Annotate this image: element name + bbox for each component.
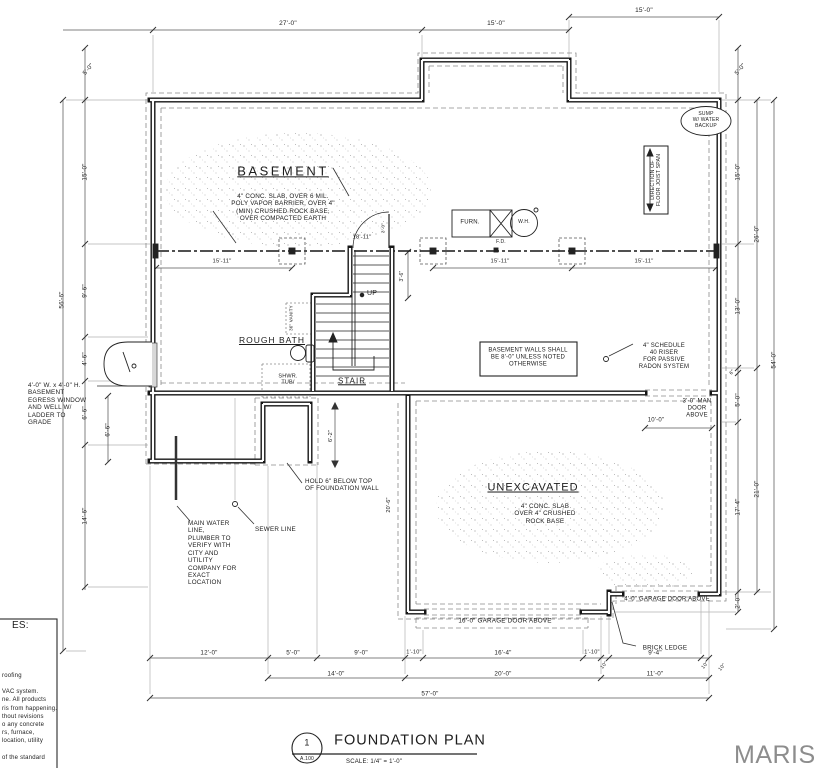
radon-riser-note: 4" SCHEDULE 40 RISER FOR PASSIVE RADON S… [639,343,689,371]
drawing-title: FOUNDATION PLAN [334,732,486,749]
dim-right-2ft: 2'-0" [734,595,741,609]
dim-bot-1ft10-a: 1'-10" [406,650,421,657]
egress-window-note: 4'-0" W. x 4'-0" H. BASEMENT EGRESS WIND… [28,382,86,427]
notes-panel-body: roofing VAC system. ne. All products ris… [2,672,57,762]
hold-below-note: HOLD 6" BELOW TOP OF FOUNDATION WALL [305,478,379,493]
dim-bot-9ft4: 9'-4" [648,649,662,656]
basement-room-label: BASEMENT [237,163,329,178]
floor-drain-label: F.D. [496,240,506,246]
dim-left-15ft: 15'-0" [81,163,88,180]
dim-porch-6ft2: 6'-2" [328,430,334,442]
dim-bot-16ft4: 16'-4" [494,649,511,656]
water-heater-label: W.H. [518,220,530,226]
dim-beam-15ft11-a: 15'-11" [213,259,232,266]
dim-beam-15ft11-c: 15'-11" [635,259,654,266]
detail-number: 1 [304,738,309,749]
main-water-line-note: MAIN WATER LINE, PLUMBER TO VERIFY WITH … [188,520,237,587]
dim-bot2-11ft: 11'-0" [647,670,664,677]
dim-beam-15ft11-b: 15'-11" [491,259,510,266]
dim-left-6ft6-a: 6'-6" [81,406,88,420]
sewer-line-label: SEWER LINE [255,526,296,533]
garage-door-16-label: 16'-0" GARAGE DOOR ABOVE [458,617,551,624]
joist-direction-label: DIRECTION OF FLOOR JOIST SPAN [650,154,662,206]
dim-right-13ft: 13'-0" [734,297,741,314]
dim-left-9ft6: 9'-6" [81,284,88,298]
dim-stair-3ft6: 3'-6" [400,271,406,282]
dim-bot-12ft: 12'-0" [200,649,217,656]
dim-bot2-20ft: 20'-0" [494,670,511,677]
shower-tub-label: SHWR. TUB/ [278,374,297,387]
dim-right-21ft: 21'-0" [753,480,760,497]
dim-left-14ft6: 14'-6" [81,507,88,524]
dim-right-5ft: 5'-0" [734,393,741,407]
dim-beam-18ft11: 18'-11" [353,235,372,242]
dim-left-6ft6-b: 6'-6" [104,423,111,437]
dim-top-15ft-b: 15'-0" [635,7,653,15]
dim-left-overall-56ft6: 56'-6" [58,291,65,308]
man-door-note: 3'-0" MAN DOOR ABOVE [683,398,712,419]
dim-right-17ft4: 17'-4" [734,498,741,515]
vanity-label: 36" VANITY [288,305,293,331]
egress-window-well [104,342,152,386]
wall-height-note: BASEMENT WALLS SHALL BE 8'-0" UNLESS NOT… [488,347,567,368]
floor-drain [494,248,498,252]
unexcavated-room-label: UNEXCAVATED [487,482,578,495]
sheet-number: A.100 [300,757,314,763]
maris-watermark: MARIS [734,741,814,768]
foundation-plan-sheet: BASEMENT4" CONC. SLAB, OVER 6 MIL. POLY … [0,0,814,768]
dim-bot2-14ft: 14'-0" [327,670,344,677]
dim-bot-9ft: 9'-0" [354,649,368,656]
rough-bath-label: ROUGH BATH [239,335,305,345]
garage-door-4-label: 4'-0" GARAGE DOOR ABOVE [624,596,710,603]
unexcavated-slab-note: 4" CONC. SLAB OVER 4" CRUSHED ROCK BASE [514,503,575,525]
dim-garage-20ft6: 20'-6" [386,497,392,512]
dim-bot-5ft: 5'-0" [286,649,300,656]
dim-right-overall-54ft: 54'-0" [770,351,777,368]
dim-left-4ft6: 4'-6" [81,352,88,366]
sump-pump-label: SUMP W/ WATER BACKUP [693,112,720,130]
dim-stair-door-3ft: 3'-0" [380,223,385,233]
dim-right-26ft: 26'-0" [753,225,760,242]
dim-right-15ft: 15'-0" [734,163,741,180]
dim-bot-1ft10-b: 1'-10" [584,650,599,657]
basement-slab-note: 4" CONC. SLAB, OVER 6 MIL. POLY VAPOR BA… [231,193,335,223]
dim-top-27ft: 27'-0" [279,20,297,28]
notes-panel-header: ES: [12,620,29,632]
drawing-scale: SCALE: 1/4" = 1'-0" [346,759,402,766]
stair-up-label: UP [367,290,377,298]
dim-bot-overall-57ft: 57'-0" [421,690,438,697]
dim-mandoor-10ft: 10'-0" [648,417,664,424]
furnace-label: FURN. [460,219,479,226]
stair-label: STAIR [338,376,366,385]
dim-top-15ft-a: 15'-0" [487,20,505,28]
